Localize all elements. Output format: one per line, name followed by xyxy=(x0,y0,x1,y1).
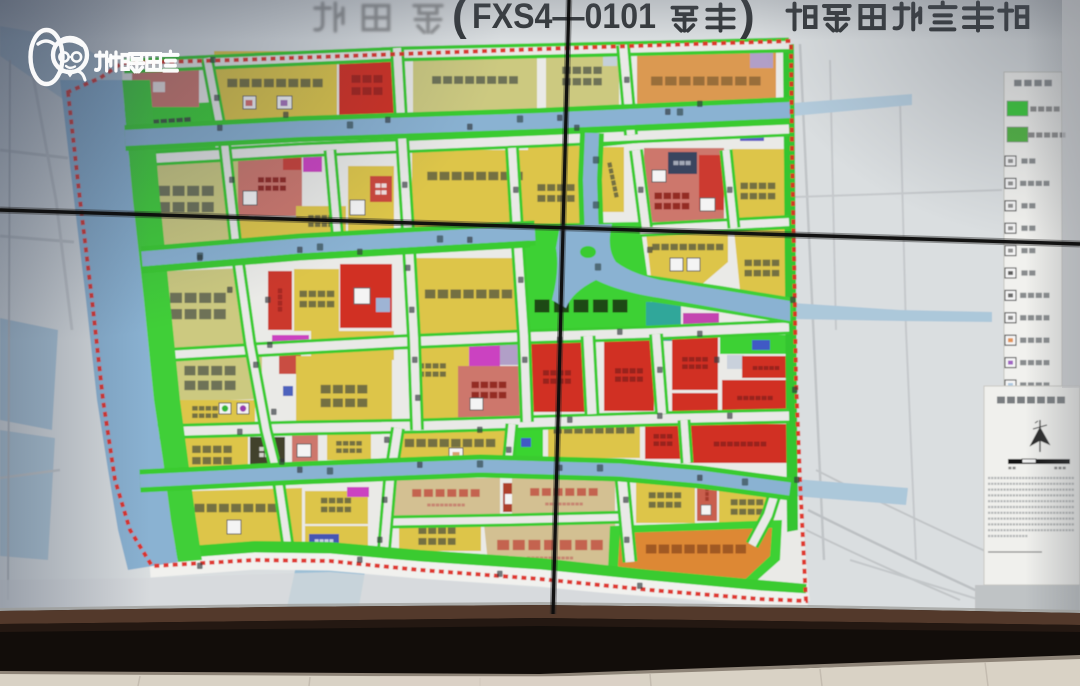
svg-text:(: ( xyxy=(452,0,467,40)
svg-text:FXS4—0101: FXS4—0101 xyxy=(472,0,656,36)
svg-text:): ) xyxy=(740,0,755,40)
